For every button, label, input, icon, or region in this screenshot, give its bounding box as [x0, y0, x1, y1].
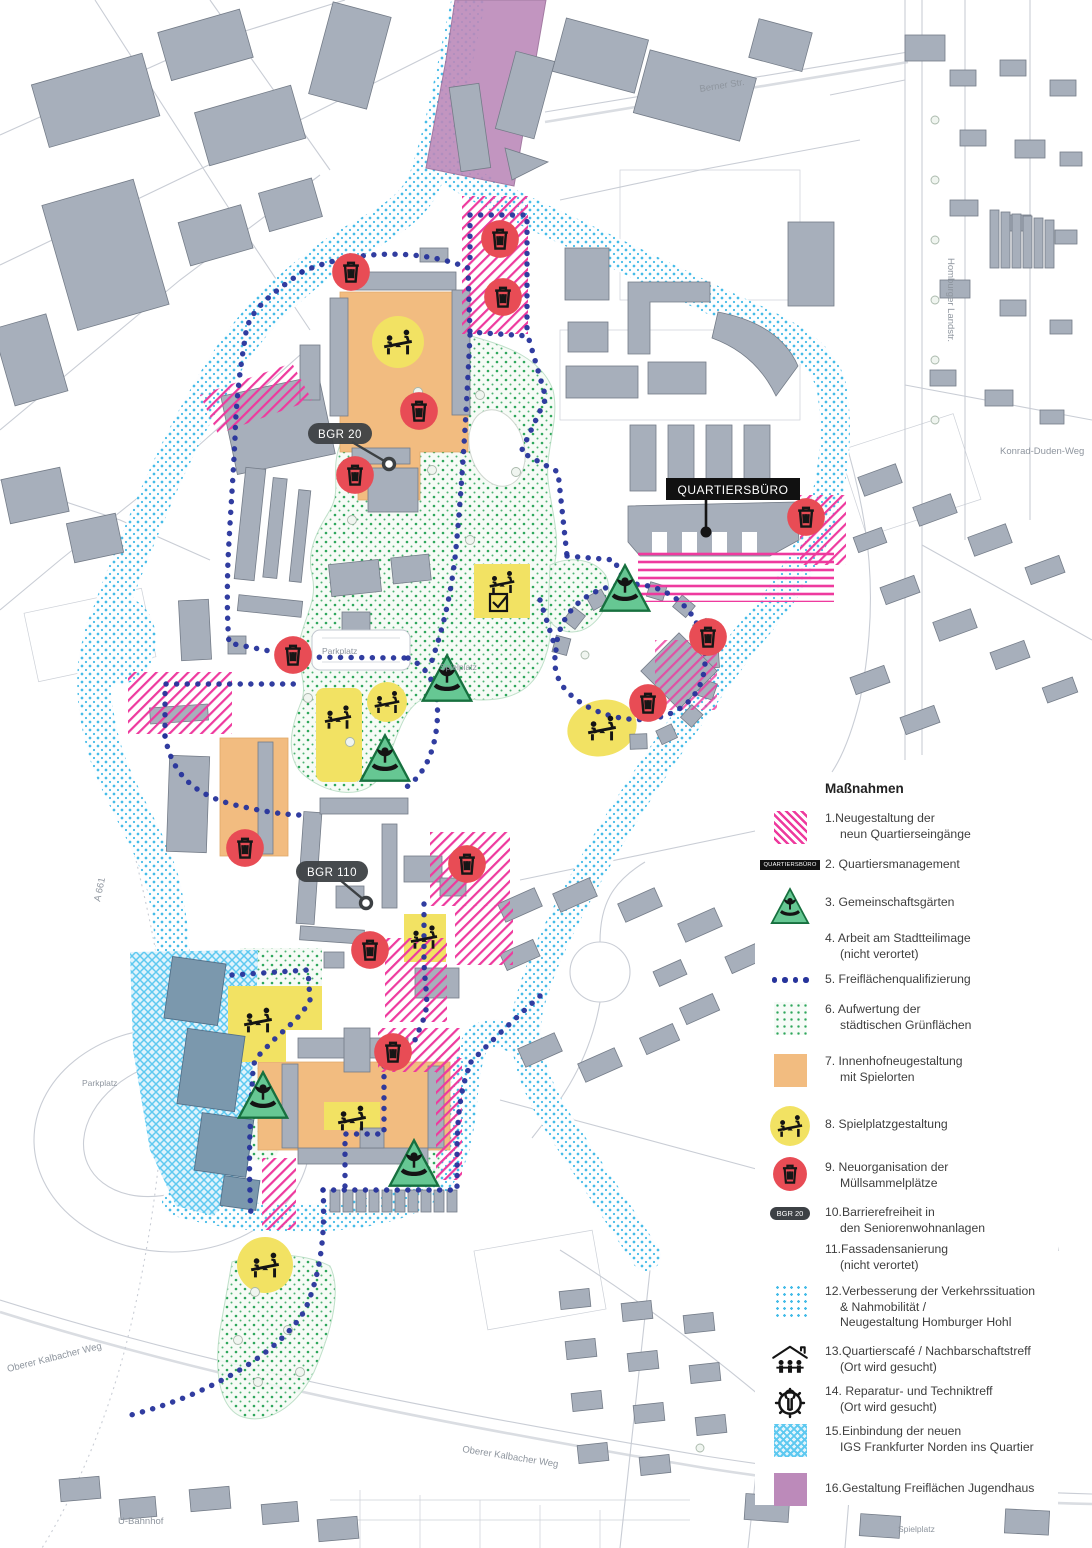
- trash-icon: [787, 498, 825, 536]
- trash-icon: [226, 829, 264, 867]
- cafe-icon: [768, 1344, 812, 1380]
- street-label: Spielplatz: [898, 1524, 935, 1534]
- street-label: Parkplatz: [82, 1078, 117, 1088]
- street-label: Homburger Landstr.: [945, 258, 956, 342]
- gear-icon: [771, 1384, 809, 1422]
- pink-hatch-swatch: [774, 811, 807, 844]
- legend-panel: Maßnahmen 1.Neugestaltung der neun Quart…: [755, 773, 1058, 1505]
- street-label: Oberer Kalbacher Weg: [462, 1444, 560, 1470]
- street-label: U-Bahnhof: [118, 1516, 164, 1527]
- garden-icon: [770, 887, 810, 925]
- street-label: Oberer Kalbacher Weg: [6, 1341, 103, 1375]
- urban-plan-page: BGR 20 BGR 110 QUARTIERSBÜRO Berner Str.…: [0, 0, 1092, 1548]
- trash-icon: [448, 845, 486, 883]
- orange-swatch: [774, 1054, 807, 1087]
- play-icon: [769, 1105, 811, 1147]
- cyan-dots-swatch: [774, 1284, 807, 1317]
- street-label: Spielplatz: [440, 662, 477, 672]
- bgr20-label: BGR 20: [318, 429, 362, 441]
- trash-icon: [689, 618, 727, 656]
- street-label: A 661: [92, 877, 108, 903]
- navy-dots-swatch: [772, 977, 809, 983]
- bgr110-label: BGR 110: [307, 867, 357, 879]
- trash-icon: [629, 684, 667, 722]
- green-dots-swatch: [774, 1002, 807, 1035]
- street-label: Parkplatz: [322, 646, 357, 656]
- trash-icon: [332, 253, 370, 291]
- trash-icon: [374, 1033, 412, 1071]
- trash-icon: [336, 456, 374, 494]
- igs-crosshatch-swatch: [774, 1424, 807, 1457]
- purple-swatch: [774, 1473, 807, 1506]
- trash-icon: [274, 636, 312, 674]
- trash-icon: [772, 1156, 808, 1192]
- legend-title: Maßnahmen: [825, 781, 904, 796]
- street-label: Konrad-Duden-Weg: [1000, 446, 1084, 457]
- quartiersbuero-label: QUARTIERSBÜRO: [678, 483, 789, 497]
- quartiersbuero-swatch: QUARTIERSBÜRO: [760, 860, 819, 870]
- trash-icon: [400, 392, 438, 430]
- bgr20-swatch: BGR 20: [770, 1207, 811, 1220]
- trash-icon: [484, 278, 522, 316]
- trash-icon: [481, 220, 519, 258]
- trash-icon: [351, 931, 389, 969]
